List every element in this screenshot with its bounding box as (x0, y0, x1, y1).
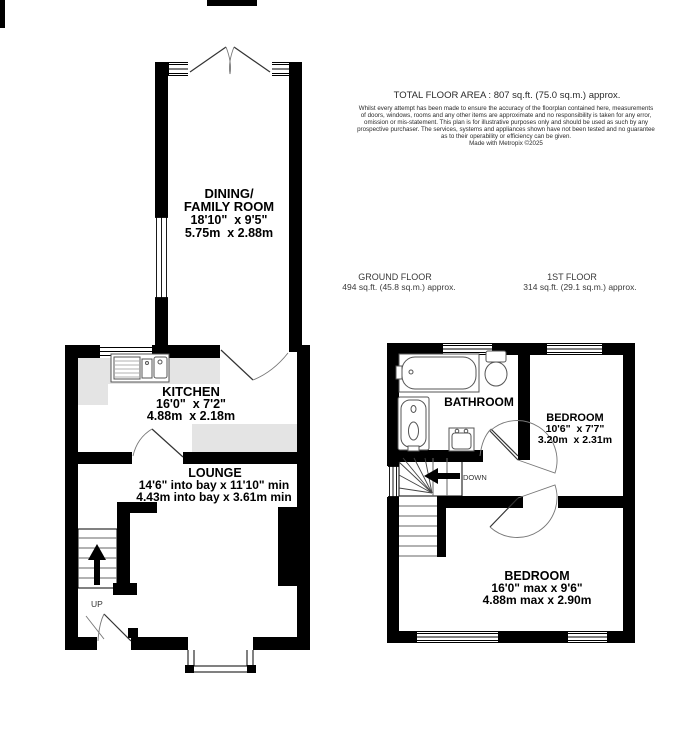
bedroom1-dims-metric: 3.20m x 2.31m (538, 434, 612, 446)
lounge-dims-metric: 4.43m into bay x 3.61m min (136, 490, 291, 504)
scan-artifact-left (0, 0, 5, 28)
first-floor-area: 314 sq.ft. (29.1 sq.m.) approx. (523, 282, 636, 292)
metropix-credit: Made with Metropix ©2025 (469, 140, 543, 147)
wash-basin (449, 428, 474, 451)
dining-window-left (169, 63, 188, 75)
toilet (485, 351, 507, 386)
kitchen-dims-metric: 4.88m x 2.18m (147, 409, 235, 423)
landing-side-window (387, 466, 399, 497)
bedroom1-window (547, 344, 602, 354)
shower-wc-unit (398, 397, 429, 451)
bathtub (396, 354, 479, 392)
bedroom2-window-right (568, 632, 607, 642)
kitchen-sink (111, 354, 169, 382)
dining-dims-imperial: 18'10" x 9'5" (191, 213, 268, 227)
floorplan-page: UP DINING/ FAMILY ROOM 18'10" x 9'5" 5.7… (0, 0, 700, 742)
total-floor-area: TOTAL FLOOR AREA : 807 sq.ft. (75.0 sq.m… (394, 90, 621, 101)
bedroom2-window-left (417, 632, 498, 642)
disclaimer-line-3: omission or mis-statement. This plan is … (364, 119, 649, 126)
disclaimer-line-1: Whilst every attempt has been made to en… (359, 105, 653, 112)
disclaimer-line-2: of doors, windows, rooms and any other i… (361, 112, 652, 119)
bedroom2-dims-metric: 4.88m max x 2.90m (483, 593, 592, 607)
bedroom1-label: BEDROOM 10'6" x 7'7" 3.20m x 2.31m (538, 412, 612, 446)
chimney-breast (278, 507, 297, 586)
dining-window-right (272, 63, 289, 75)
disclaimer-line-5: as to their operability or efficiency ca… (441, 133, 572, 140)
ground-floor-area: 494 sq.ft. (45.8 sq.m.) approx. (342, 282, 455, 292)
stairs-down-label: DOWN (463, 473, 487, 482)
bathroom-window (443, 344, 492, 354)
stairs-up-label: UP (91, 599, 103, 609)
kitchen-lounge-wall (78, 452, 297, 464)
ground-floor-title: GROUND FLOOR (358, 272, 432, 282)
dining-dims-metric: 5.75m x 2.88m (185, 226, 273, 240)
disclaimer-line-4: prospective purchaser. The services, sys… (357, 126, 655, 133)
scan-artifact-top (207, 0, 257, 6)
floorplan-svg: UP DINING/ FAMILY ROOM 18'10" x 9'5" 5.7… (0, 0, 700, 742)
bathroom-label: BATHROOM (444, 395, 514, 409)
first-floor-title: 1ST FLOOR (547, 272, 597, 282)
dining-side-window (154, 217, 169, 298)
dining-name-line2: FAMILY ROOM (184, 199, 274, 214)
